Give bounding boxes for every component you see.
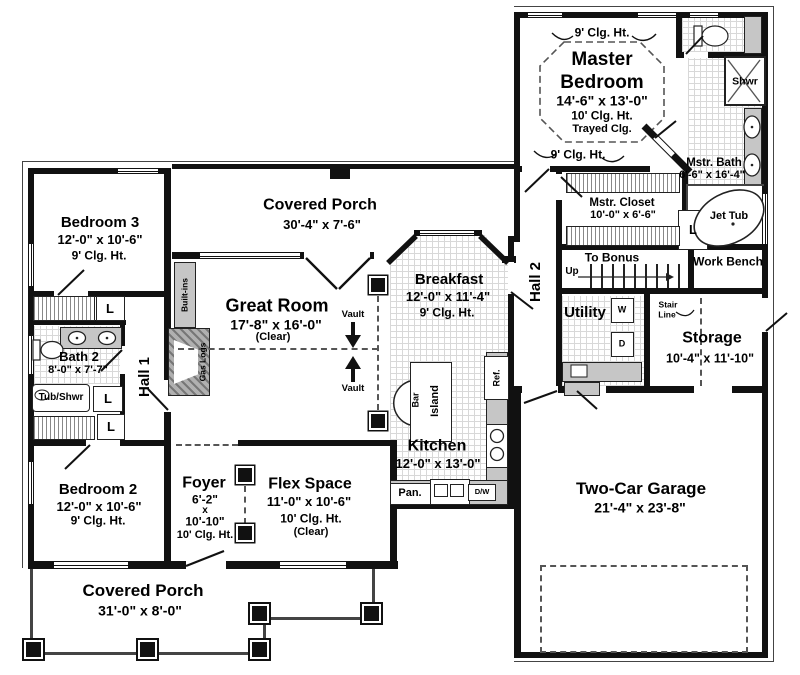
utility-stoop — [564, 382, 600, 396]
door-opening — [120, 346, 125, 374]
wall — [514, 12, 520, 170]
room-dims: 21'-4" x 23'-8" — [594, 501, 686, 516]
fixture-label: Jet Tub — [710, 211, 748, 223]
porch-column — [138, 640, 157, 659]
window — [280, 561, 346, 569]
room-name: Covered Porch — [83, 582, 204, 600]
room-name: Hall 1 — [137, 357, 153, 397]
room-name: Flex Space — [268, 477, 352, 494]
porch-column — [362, 604, 381, 623]
room-name: Bedroom 2 — [59, 482, 137, 498]
door-leaf — [525, 169, 549, 192]
room-dims: 12'-0" x 11'-4" — [406, 290, 490, 304]
master-vanity — [744, 108, 762, 186]
ceiling-note: Trayed Clg. — [572, 124, 631, 136]
column-post — [371, 278, 385, 292]
room-dims: 31'-0" x 8'-0" — [98, 604, 182, 619]
column-post — [371, 414, 385, 428]
room-name: Kitchen — [408, 439, 467, 456]
appliance-label: D — [619, 339, 626, 348]
room-name: Mstr. Closet — [589, 197, 654, 209]
column-post — [238, 468, 252, 482]
ceiling-note: 10' Clg. Ht. — [177, 530, 233, 542]
ceiling-note: 9' Clg. Ht. — [71, 515, 126, 528]
door-opening — [508, 262, 514, 294]
room-name: Foyer — [182, 476, 226, 493]
garage-door-area — [540, 565, 748, 653]
door-opening — [694, 386, 732, 393]
note-label: (Clear) — [294, 527, 329, 539]
fixture-label: Bar — [411, 392, 420, 407]
door-opening — [684, 52, 708, 58]
wall — [514, 386, 521, 658]
eave-line — [514, 6, 774, 7]
room-dims: 12'-0" x 10'-6" — [57, 233, 142, 247]
room-name: Work Bench — [693, 256, 763, 269]
closet-label: L — [107, 420, 115, 434]
eave-line — [22, 161, 518, 162]
room-name: Hall 2 — [528, 262, 544, 302]
room-name: Bedroom 3 — [61, 215, 139, 231]
appliance-label: W — [618, 305, 627, 314]
window — [420, 230, 474, 236]
room-dims: 12'-0" x 13'-0" — [395, 457, 480, 471]
room-dims: 10'-0" x 6'-6" — [590, 210, 656, 222]
window — [28, 462, 34, 504]
note-label: Stair — [659, 301, 678, 310]
room-dims: 10'-10" — [185, 516, 224, 529]
room-name: Breakfast — [415, 272, 483, 288]
column-post — [238, 526, 252, 540]
door-opening — [186, 561, 226, 569]
door-leaf — [65, 445, 90, 469]
porch-column — [330, 166, 350, 179]
window — [118, 168, 158, 174]
vault-break-line — [178, 348, 378, 350]
closet-label: L — [689, 223, 697, 237]
eave-line — [22, 161, 23, 568]
room-name: Bedroom — [560, 73, 643, 93]
door-leaf — [306, 258, 337, 289]
door-opening — [86, 440, 120, 446]
vault-arrow-down-head — [345, 335, 361, 348]
fixture-label: Shwr — [732, 76, 758, 87]
closet-label: L — [106, 302, 114, 316]
window — [762, 194, 768, 244]
door-opening — [522, 166, 550, 172]
wall — [644, 292, 650, 390]
wall — [238, 440, 392, 446]
closet-rod — [566, 226, 680, 246]
note-label: Line — [658, 311, 675, 320]
room-name: Mstr. Bath — [686, 157, 742, 169]
ceiling-note: 9' Clg. Ht. — [72, 250, 127, 263]
vault-label: Vault — [342, 310, 365, 320]
door-opening — [522, 386, 558, 393]
stove — [486, 424, 508, 468]
door-leaf — [655, 121, 676, 138]
door-leaf — [339, 258, 370, 289]
leader-line — [552, 33, 573, 39]
tub-drain — [731, 222, 734, 225]
door-opening — [556, 174, 562, 200]
room-name: Master — [571, 50, 632, 70]
ceiling-note: 9' Clg. Ht. — [551, 149, 606, 162]
utility-counter — [562, 362, 642, 382]
fixture-label: Tub/Shwr — [39, 393, 84, 404]
closet-rod — [33, 296, 95, 321]
ceiling-break — [176, 444, 238, 446]
wall — [556, 288, 768, 294]
fixture-label: Gas Logs — [199, 343, 208, 382]
note-label: (Clear) — [256, 332, 291, 344]
sink-basin — [434, 484, 448, 497]
appliance-label: D/W — [475, 488, 490, 496]
window — [690, 12, 718, 18]
diagonal-wall — [644, 126, 690, 172]
ceiling-note: 10' Clg. Ht. — [571, 110, 633, 123]
ceiling-note: 10' Clg. Ht. — [280, 513, 342, 526]
room-name: Bath 2 — [59, 350, 99, 364]
door-leaf — [766, 313, 787, 331]
ceiling-note: 9' Clg. Ht. — [420, 307, 475, 320]
window — [54, 561, 128, 569]
wall — [514, 166, 520, 240]
window — [638, 12, 676, 18]
room-dims: 17'-8" x 16'-0" — [230, 318, 322, 333]
toilet-room-vanity — [744, 16, 762, 54]
window — [528, 12, 562, 18]
leader-line — [632, 34, 656, 40]
window — [28, 336, 34, 374]
eave-line — [773, 6, 774, 662]
tub-platform-edge — [686, 184, 764, 186]
room-dims: 14'-6" x 13'-0" — [556, 94, 648, 109]
colonnade-opening — [377, 296, 379, 410]
room-dims: 6'-6" x 16'-4" — [679, 170, 745, 182]
window — [200, 252, 300, 259]
fixture-label: Pan. — [398, 488, 421, 500]
door-opening — [762, 298, 768, 332]
room-name: Storage — [682, 331, 742, 348]
room-dims: 8'-0" x 7'-7" — [48, 365, 108, 377]
room-name: Utility — [564, 305, 606, 321]
room-dims: 12'-0" x 10'-6" — [56, 500, 141, 514]
porch-column — [250, 640, 269, 659]
eave-line — [514, 661, 774, 662]
porch-rail — [263, 617, 375, 620]
porch-column — [24, 640, 43, 659]
door-opening — [655, 137, 673, 155]
bath2-vanity — [60, 327, 122, 349]
room-name: Covered Porch — [263, 198, 377, 215]
room-dims: 11'-0" x 10'-6" — [267, 495, 351, 509]
sink-basin — [450, 484, 464, 497]
door-opening — [304, 252, 370, 259]
room-name: Great Room — [225, 297, 328, 316]
vault-arrow-up-head — [345, 356, 361, 369]
leader-line — [676, 310, 694, 316]
room-name: Two-Car Garage — [576, 480, 706, 498]
stairs-label: Up — [565, 267, 578, 278]
appliance-label: Ref. — [492, 369, 501, 386]
room-dims: 30'-4" x 7'-6" — [283, 218, 361, 232]
foyer-opening — [244, 486, 246, 524]
fixture-label: Built-ins — [181, 278, 190, 312]
window — [28, 244, 34, 286]
porch-column — [250, 604, 269, 623]
ceiling-note: 9' Clg. Ht. — [575, 27, 630, 40]
room-dims: 10'-4" x 11'-10" — [666, 352, 754, 365]
floor-plan: 9' Clg. Ht. Master Bedroom 14'-6" x 13'-… — [0, 0, 800, 675]
closet-rod — [33, 416, 95, 440]
stairs-label: To Bonus — [585, 252, 639, 265]
fixture-label: Island — [430, 385, 442, 417]
closet-rod — [566, 173, 680, 193]
closet-label: L — [104, 392, 112, 406]
vault-label: Vault — [342, 384, 365, 394]
wall — [762, 12, 768, 658]
stair-treads — [590, 264, 684, 288]
wall — [562, 166, 650, 172]
